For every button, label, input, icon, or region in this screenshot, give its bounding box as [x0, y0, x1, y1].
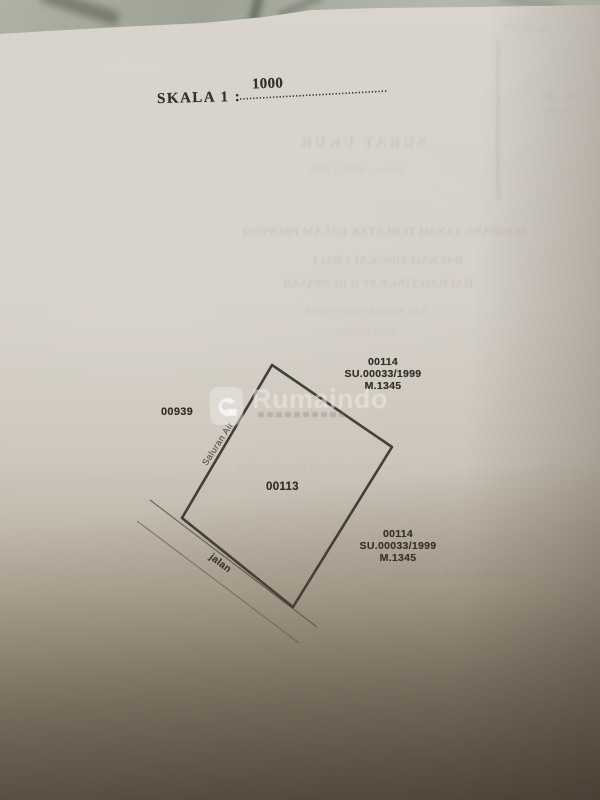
bleed-through-text: No. 1810/B: [467, 20, 587, 37]
parcel-number-main: 00113: [266, 481, 299, 493]
neighbor-block-bottom-right: 00114 SU.00033/1999 M.1345: [343, 528, 453, 564]
scale-value: 1000: [252, 75, 284, 93]
bleed-through-text: Sesuai Keputusan Kepala Kantor Pertanaha…: [232, 462, 412, 472]
parcel-number-left-neighbor: 00939: [161, 406, 193, 418]
neighbor-parcel-number: 00114: [343, 528, 453, 540]
road-edge-upper: [150, 500, 317, 627]
bleed-through-text: DAERAH TINGKAT I BALI: [308, 253, 468, 268]
scale-label: SKALA 1 :: [157, 89, 242, 108]
neighbor-parcel-number: 00114: [328, 356, 438, 368]
marble-vein: [40, 0, 120, 26]
shadow-overlay-right: [0, 0, 600, 800]
paper-sheet: SURAT UKUR Nomor : 00033 / 1999 SEBIDANG…: [0, 0, 600, 800]
neighbor-su-number: SU.00033/1999: [328, 368, 438, 380]
bleed-through-text: SURAT UKUR: [272, 135, 452, 152]
water-channel-label: Saluran Air: [200, 395, 252, 468]
bleed-through-text: SEBIDANG TANAH TERLETAK DALAM PROPINSI: [287, 224, 527, 239]
shadow-overlay-bottom: [0, 0, 600, 800]
neighbor-block-top-right: 00114 SU.00033/1999 M.1345: [328, 356, 438, 392]
bleed-through-text: 20-03-1999: [507, 104, 600, 114]
bleed-through-text: KECAMATAN DENPASAR: [306, 306, 426, 317]
bleed-through-text: tanggal 22 April 1999: [345, 589, 485, 600]
bleed-through-text: KELURAHAN: [316, 327, 416, 338]
bleed-through-text: DAERAH TINGKAT II DENPASAR: [293, 276, 473, 291]
paper-crease: [497, 40, 499, 200]
watermark-tagline: [258, 412, 346, 417]
neighbor-su-number: SU.00033/1999: [343, 540, 453, 552]
neighbor-m-number: M.1345: [343, 552, 453, 564]
road-label: jalan: [207, 552, 249, 587]
road-edge-lower: [137, 521, 299, 643]
bleed-through-text: Nomor : 00033 / 1999: [277, 165, 437, 176]
photo-of-survey-document: SURAT UKUR Nomor : 00033 / 1999 SEBIDANG…: [0, 0, 600, 800]
neighbor-m-number: M.1345: [328, 380, 438, 392]
bleed-through-text: Pejabat Pembuat Akta Tanah: [363, 568, 543, 580]
bleed-through-text: ( Pasal 12 ayat 1 ): [365, 737, 505, 748]
site-plan-lines: [0, 0, 600, 800]
bleed-through-text: 2962 / 1999: [505, 91, 600, 101]
